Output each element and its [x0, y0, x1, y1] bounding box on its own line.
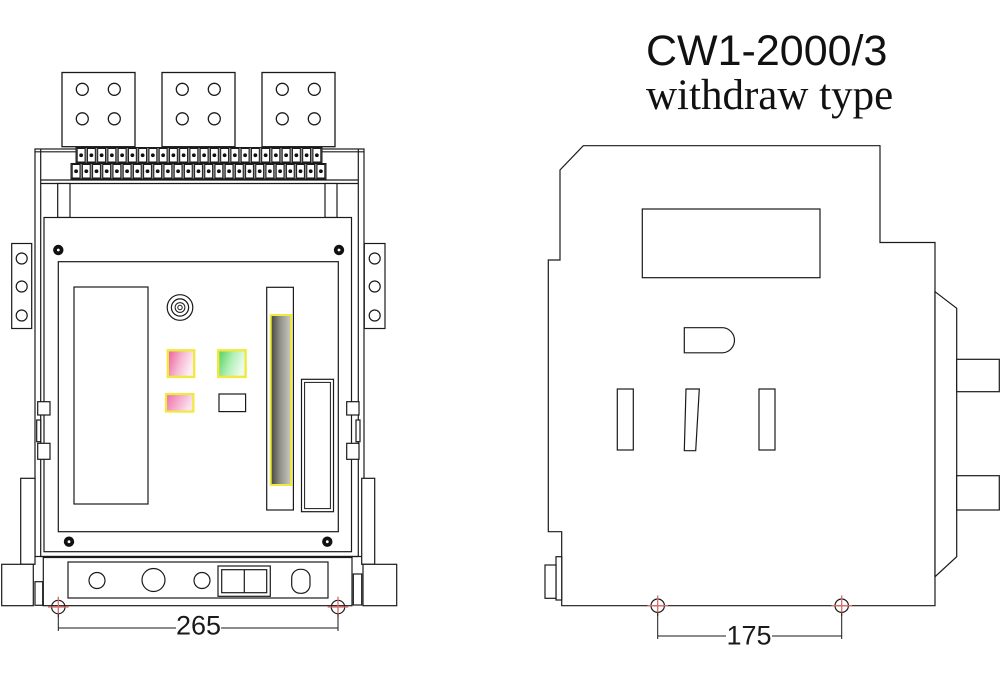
subframe-left-column — [58, 184, 70, 218]
subframe-right-column — [325, 184, 337, 218]
handle-slot-opening — [271, 315, 291, 485]
left-mounting-bracket — [12, 244, 32, 329]
bus-terminals — [62, 73, 335, 147]
mechanism-panel — [43, 558, 352, 606]
terminal-row-1 — [76, 148, 322, 164]
indicator-window — [219, 394, 246, 412]
side-view: 175 — [545, 146, 999, 651]
right-mounting-bracket — [364, 244, 385, 329]
rating-label-window — [74, 287, 148, 504]
on-button[interactable] — [218, 350, 245, 377]
off-button[interactable] — [168, 350, 194, 377]
reset-button[interactable] — [166, 394, 193, 412]
side-window — [302, 379, 334, 511]
side-dimension-label: 175 — [726, 621, 771, 651]
terminal-row-2 — [71, 164, 326, 180]
technical-drawing: 265 — [0, 0, 1000, 680]
handle-slot — [267, 287, 294, 510]
side-label-window — [642, 209, 820, 278]
side-terminal-tab-lower — [957, 476, 1000, 510]
front-view: 265 — [2, 73, 397, 641]
drawing-page: CW1-2000/3 withdraw type — [0, 0, 1000, 680]
front-dimension-label: 265 — [176, 611, 221, 641]
racking-switch[interactable] — [218, 566, 270, 596]
side-right-block — [935, 292, 957, 577]
side-terminal-tab-upper — [957, 359, 1000, 391]
side-foot — [545, 557, 562, 600]
crank-socket — [292, 569, 310, 593]
side-handle-cutout — [684, 328, 734, 353]
